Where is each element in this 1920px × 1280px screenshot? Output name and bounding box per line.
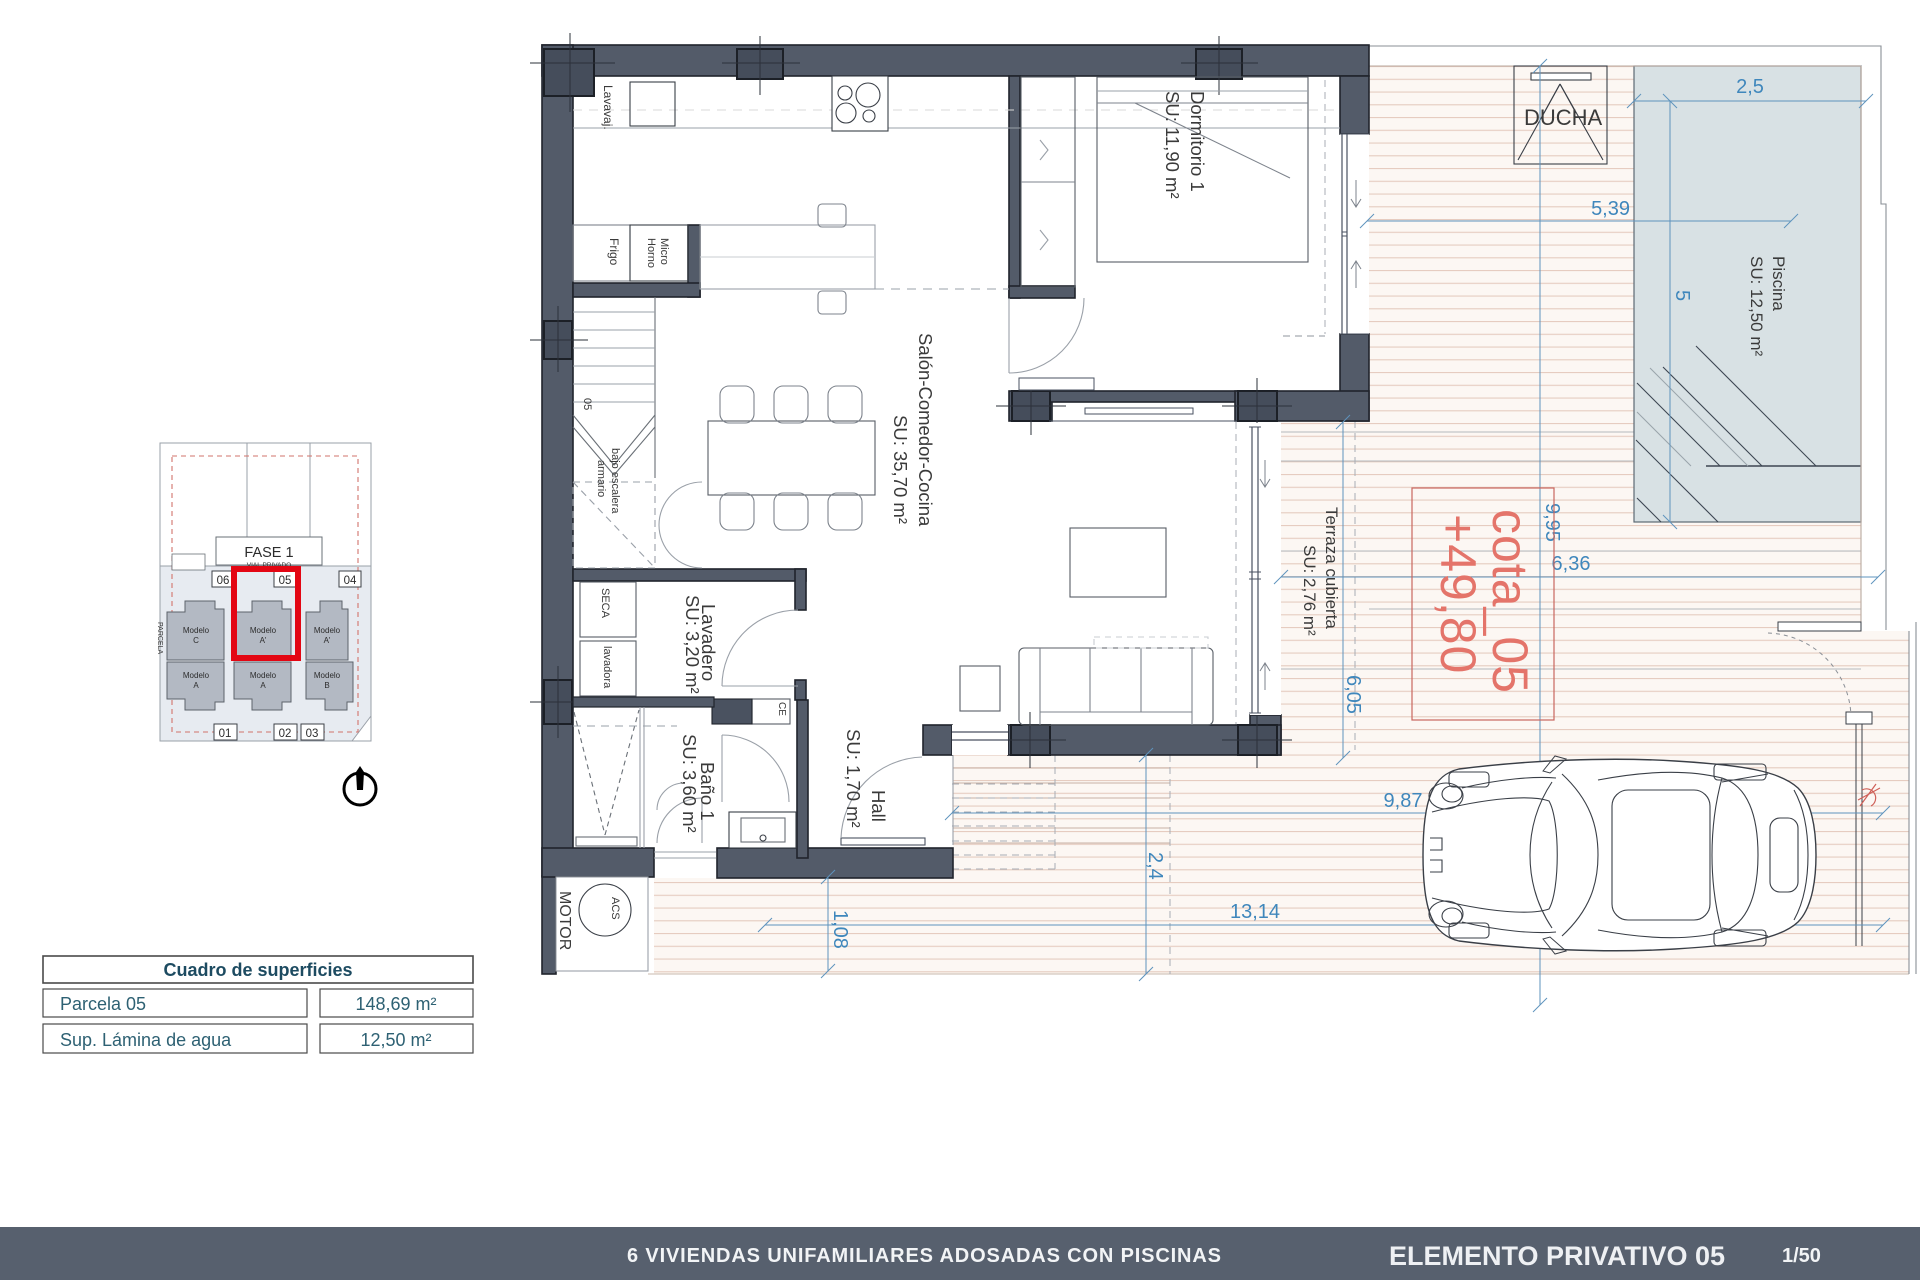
svg-text:bajo escalera: bajo escalera bbox=[609, 448, 621, 514]
svg-text:1/50: 1/50 bbox=[1782, 1245, 1821, 1267]
svg-text:13,14: 13,14 bbox=[1230, 901, 1280, 923]
svg-text:1,08: 1,08 bbox=[829, 910, 851, 949]
svg-text:Lavavaj.: Lavavaj. bbox=[601, 85, 615, 130]
svg-text:148,69 m²: 148,69 m² bbox=[355, 994, 436, 1014]
svg-text:03: 03 bbox=[306, 728, 319, 740]
svg-text:SU: 1,70 m²: SU: 1,70 m² bbox=[843, 729, 864, 828]
svg-text:Sup. Lámina de agua: Sup. Lámina de agua bbox=[60, 1030, 232, 1050]
svg-text:9,87: 9,87 bbox=[1384, 790, 1423, 812]
svg-text:Cuadro de superficies: Cuadro de superficies bbox=[163, 960, 352, 980]
svg-text:A: A bbox=[193, 681, 199, 690]
svg-text:Modelo: Modelo bbox=[183, 671, 210, 680]
svg-text:01: 01 bbox=[219, 728, 232, 740]
svg-text:B: B bbox=[324, 681, 329, 690]
svg-text:SU: 12,50 m²: SU: 12,50 m² bbox=[1747, 256, 1766, 356]
svg-text:ELEMENTO PRIVATIVO 05: ELEMENTO PRIVATIVO 05 bbox=[1389, 1241, 1725, 1271]
svg-text:02: 02 bbox=[279, 728, 292, 740]
svg-text:C: C bbox=[193, 636, 199, 645]
svg-text:9,95: 9,95 bbox=[1541, 503, 1563, 542]
svg-text:Micro: Micro bbox=[658, 238, 670, 265]
svg-text:5,39: 5,39 bbox=[1591, 198, 1630, 220]
svg-text:04: 04 bbox=[344, 575, 357, 587]
svg-text:6,05: 6,05 bbox=[1342, 675, 1364, 714]
svg-text:Modelo: Modelo bbox=[314, 626, 341, 635]
svg-text:CE: CE bbox=[776, 702, 787, 716]
svg-text:Modelo: Modelo bbox=[183, 626, 210, 635]
svg-text:Terraza cubierta: Terraza cubierta bbox=[1322, 507, 1341, 629]
svg-text:lavadora: lavadora bbox=[601, 646, 613, 689]
svg-text:MOTOR: MOTOR bbox=[556, 891, 573, 950]
svg-text:PARCELA: PARCELA bbox=[156, 622, 163, 654]
svg-text:12,50 m²: 12,50 m² bbox=[360, 1030, 431, 1050]
svg-text:ACS: ACS bbox=[609, 897, 621, 920]
svg-text:cota_05: cota_05 bbox=[1482, 509, 1538, 694]
svg-text:2,5: 2,5 bbox=[1736, 76, 1764, 98]
svg-text:Parcela 05: Parcela 05 bbox=[60, 994, 146, 1014]
svg-text:SU: 11,90 m²: SU: 11,90 m² bbox=[1162, 91, 1183, 199]
svg-text:SU: 35,70 m²: SU: 35,70 m² bbox=[890, 415, 911, 524]
svg-text:6,36: 6,36 bbox=[1552, 553, 1591, 575]
svg-text:A: A bbox=[260, 681, 266, 690]
svg-text:FASE 1: FASE 1 bbox=[244, 545, 293, 561]
svg-text:05: 05 bbox=[279, 575, 292, 587]
svg-text:6 VIVIENDAS UNIFAMILIARES ADOS: 6 VIVIENDAS UNIFAMILIARES ADOSADAS CON P… bbox=[627, 1245, 1222, 1267]
svg-text:A': A' bbox=[260, 636, 267, 645]
svg-text:Piscina: Piscina bbox=[1769, 256, 1788, 311]
svg-text:Horno: Horno bbox=[645, 238, 657, 268]
svg-text:+49,80: +49,80 bbox=[1430, 514, 1486, 674]
svg-text:Modelo: Modelo bbox=[250, 626, 277, 635]
svg-text:SU: 3,20 m²: SU: 3,20 m² bbox=[682, 595, 703, 694]
svg-text:2,4: 2,4 bbox=[1144, 852, 1166, 880]
svg-text:Frigo: Frigo bbox=[607, 238, 621, 266]
svg-text:DUCHA: DUCHA bbox=[1524, 105, 1603, 130]
svg-text:armario: armario bbox=[595, 460, 607, 497]
svg-text:Modelo: Modelo bbox=[250, 671, 277, 680]
svg-text:Hall: Hall bbox=[868, 790, 889, 822]
svg-text:05: 05 bbox=[581, 398, 593, 410]
svg-text:06: 06 bbox=[217, 575, 230, 587]
svg-text:Salón-Comedor-Cocina: Salón-Comedor-Cocina bbox=[915, 333, 936, 527]
svg-text:Modelo: Modelo bbox=[314, 671, 341, 680]
svg-text:SECA: SECA bbox=[599, 588, 611, 619]
svg-text:SU: 3,60 m²: SU: 3,60 m² bbox=[679, 734, 700, 833]
svg-text:A': A' bbox=[324, 636, 331, 645]
svg-text:Dormitorio 1: Dormitorio 1 bbox=[1187, 91, 1208, 192]
svg-text:SU: 2,76 m²: SU: 2,76 m² bbox=[1300, 545, 1319, 636]
svg-text:5: 5 bbox=[1671, 290, 1693, 301]
